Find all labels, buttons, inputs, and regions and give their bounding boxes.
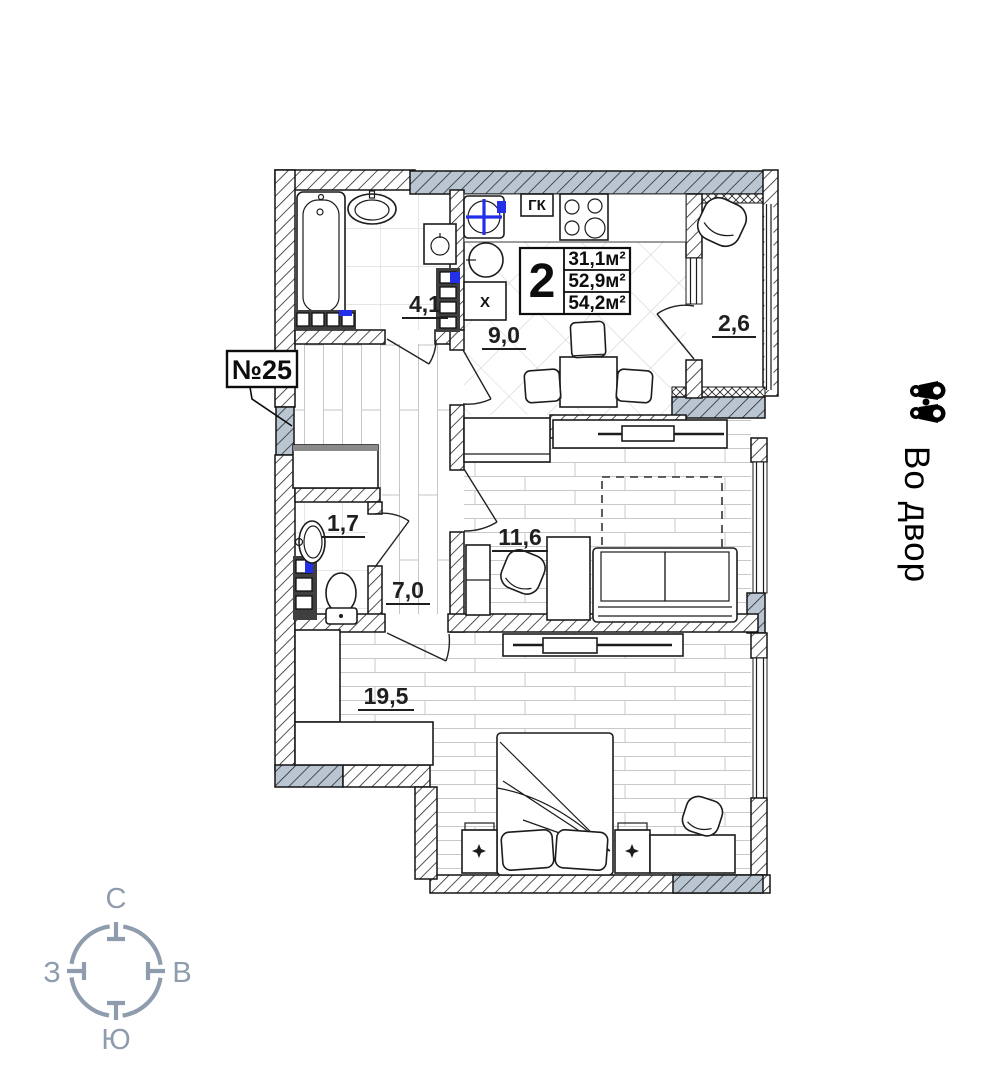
wall-wc-top	[295, 488, 380, 502]
bathroom-area-label: 4,1	[409, 291, 441, 317]
bathtub-icon	[297, 192, 345, 322]
rooms-count: 2	[529, 255, 556, 308]
gk-label: ГК	[528, 197, 547, 214]
living-wardrobe-icon	[464, 418, 550, 462]
living-cabinet-icon	[466, 545, 490, 615]
wall-living-right-top	[751, 438, 767, 462]
kitchen-area-label: 9,0	[488, 322, 520, 348]
blue-marker	[497, 201, 506, 213]
balcony-area-label: 2,6	[718, 310, 750, 336]
bedroom-cabinet-icon	[295, 722, 433, 765]
fridge-label: Х	[480, 294, 490, 311]
sofa-icon	[593, 548, 737, 622]
wall-step-horizontal	[343, 765, 430, 787]
compass-rose: С Ю З В	[43, 883, 191, 1056]
compass-east-label: В	[172, 957, 191, 989]
hall-fixtures	[293, 445, 378, 488]
wall-bathroom-bottom-left	[295, 330, 385, 344]
courtyard-view-label: Во двор	[897, 446, 936, 583]
wall-hall-kitchen-1	[450, 330, 464, 350]
wall-wc-right-2	[368, 566, 382, 616]
courtyard-view: Во двор	[897, 381, 946, 583]
entry-door-block	[276, 407, 294, 455]
total-area-value: 54,2м²	[568, 293, 625, 314]
apartment-number-label: №25	[232, 355, 292, 385]
bedroom-wardrobe-icon	[295, 630, 340, 722]
wall-left-bottom	[275, 455, 295, 770]
toilet-icon	[326, 573, 357, 624]
balcony-window	[686, 258, 702, 304]
living-area-value: 31,1м²	[568, 249, 625, 270]
wc-shaft	[293, 556, 317, 620]
living-area-label: 11,6	[498, 524, 542, 550]
balcony-glazing	[765, 204, 774, 390]
wall-bottom-gray	[673, 875, 763, 893]
apartment-area-value: 52,9м²	[568, 271, 625, 292]
nightstand-right-icon	[615, 823, 650, 873]
binoculars-icon	[910, 381, 946, 423]
hall-closet-icon	[293, 445, 378, 488]
living-tv-icon	[553, 420, 727, 448]
bedroom-tv-icon	[503, 634, 683, 656]
bedroom-desk-icon	[650, 835, 735, 873]
blue-marker	[339, 310, 352, 316]
hall-area-label: 7,0	[392, 577, 424, 603]
wall-top-bathroom	[275, 170, 415, 190]
wall-bedroom-right-bottom	[751, 798, 767, 875]
gk-closet: ГК	[521, 194, 553, 216]
area-summary-table: 2 31,1м² 52,9м² 54,2м²	[520, 248, 630, 314]
wall-wc-right-1	[368, 502, 382, 514]
fridge-icon: Х	[464, 282, 506, 320]
compass-west-label: З	[43, 957, 61, 989]
wall-bedroom-right-top	[751, 633, 767, 658]
compass-south-label: Ю	[101, 1024, 130, 1056]
bathroom-shaft	[294, 310, 356, 330]
bed-icon	[497, 733, 613, 875]
stove-icon	[560, 194, 608, 240]
living-desk-icon	[547, 537, 590, 620]
living-window	[753, 462, 767, 593]
floor-plan: ГК Х	[0, 0, 1000, 1067]
kitchen-sink-icon	[464, 196, 506, 238]
wall-hall-kitchen-2	[450, 405, 464, 470]
wall-step-gray	[275, 765, 343, 787]
compass-north-label: С	[106, 883, 127, 915]
bedroom-window	[753, 658, 767, 798]
wall-balcony-left-bottom	[686, 360, 702, 398]
blue-marker	[450, 272, 460, 283]
nightstand-left-icon	[462, 823, 497, 873]
wall-step-vertical	[415, 787, 437, 879]
bedroom-area-label: 19,5	[364, 683, 409, 709]
wc-area-label: 1,7	[327, 510, 359, 536]
washing-machine-icon	[424, 224, 456, 264]
